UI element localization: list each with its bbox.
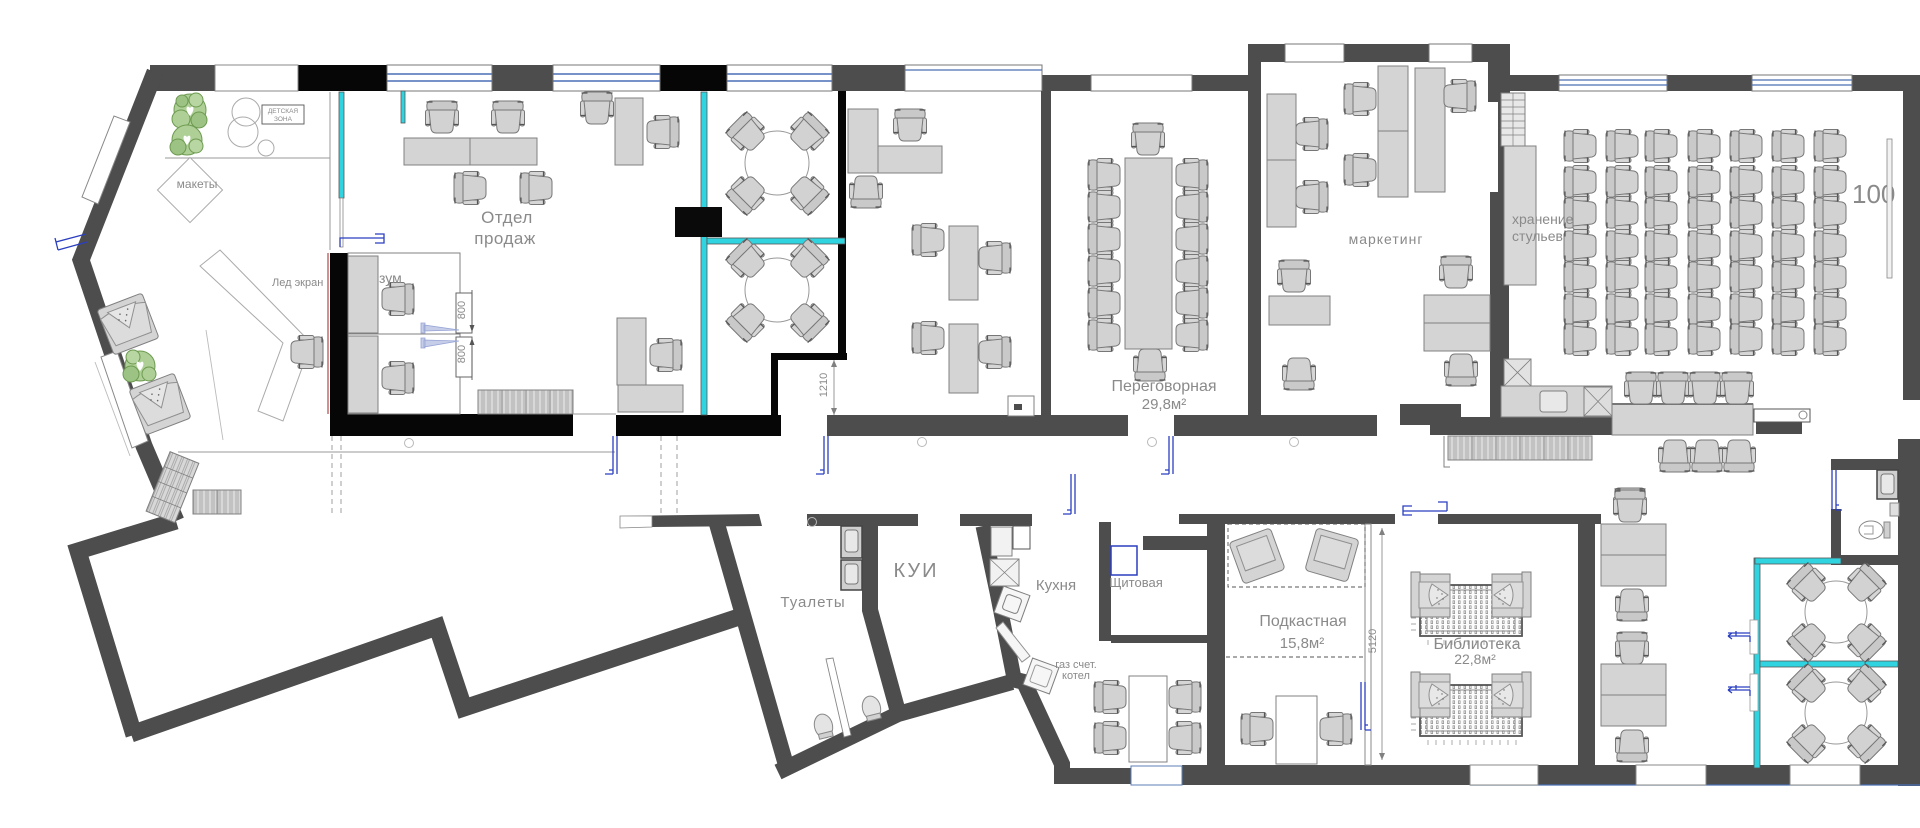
- svg-text:Щитовая: Щитовая: [1109, 575, 1163, 590]
- svg-text:22,8м²: 22,8м²: [1454, 651, 1496, 667]
- svg-text:ЗОНА: ЗОНА: [274, 116, 293, 123]
- svg-text:Кухня: Кухня: [1036, 577, 1076, 594]
- svg-text:800: 800: [456, 345, 468, 363]
- svg-text:29,8м²: 29,8м²: [1142, 396, 1187, 413]
- svg-text:15,8м²: 15,8м²: [1280, 635, 1325, 652]
- svg-text:Подкастная: Подкастная: [1259, 613, 1346, 630]
- svg-text:продаж: продаж: [474, 229, 536, 248]
- svg-text:Лед экран: Лед экран: [272, 277, 323, 289]
- svg-text:800: 800: [456, 301, 468, 319]
- svg-text:хранение: хранение: [1512, 211, 1574, 227]
- svg-text:ДЕТСКАЯ: ДЕТСКАЯ: [268, 108, 299, 115]
- svg-text:зум: зум: [379, 270, 402, 286]
- svg-text:маркетинг: маркетинг: [1349, 231, 1424, 247]
- svg-text:5120: 5120: [1367, 629, 1379, 653]
- svg-text:стульев: стульев: [1512, 228, 1563, 244]
- svg-text:Туалеты: Туалеты: [780, 594, 845, 611]
- svg-text:Переговорная: Переговорная: [1111, 378, 1216, 395]
- svg-text:КУИ: КУИ: [894, 560, 939, 582]
- svg-text:1210: 1210: [818, 373, 830, 397]
- svg-text:котел: котел: [1062, 670, 1090, 682]
- svg-text:Отдел: Отдел: [481, 208, 533, 227]
- svg-text:макеты: макеты: [177, 177, 218, 191]
